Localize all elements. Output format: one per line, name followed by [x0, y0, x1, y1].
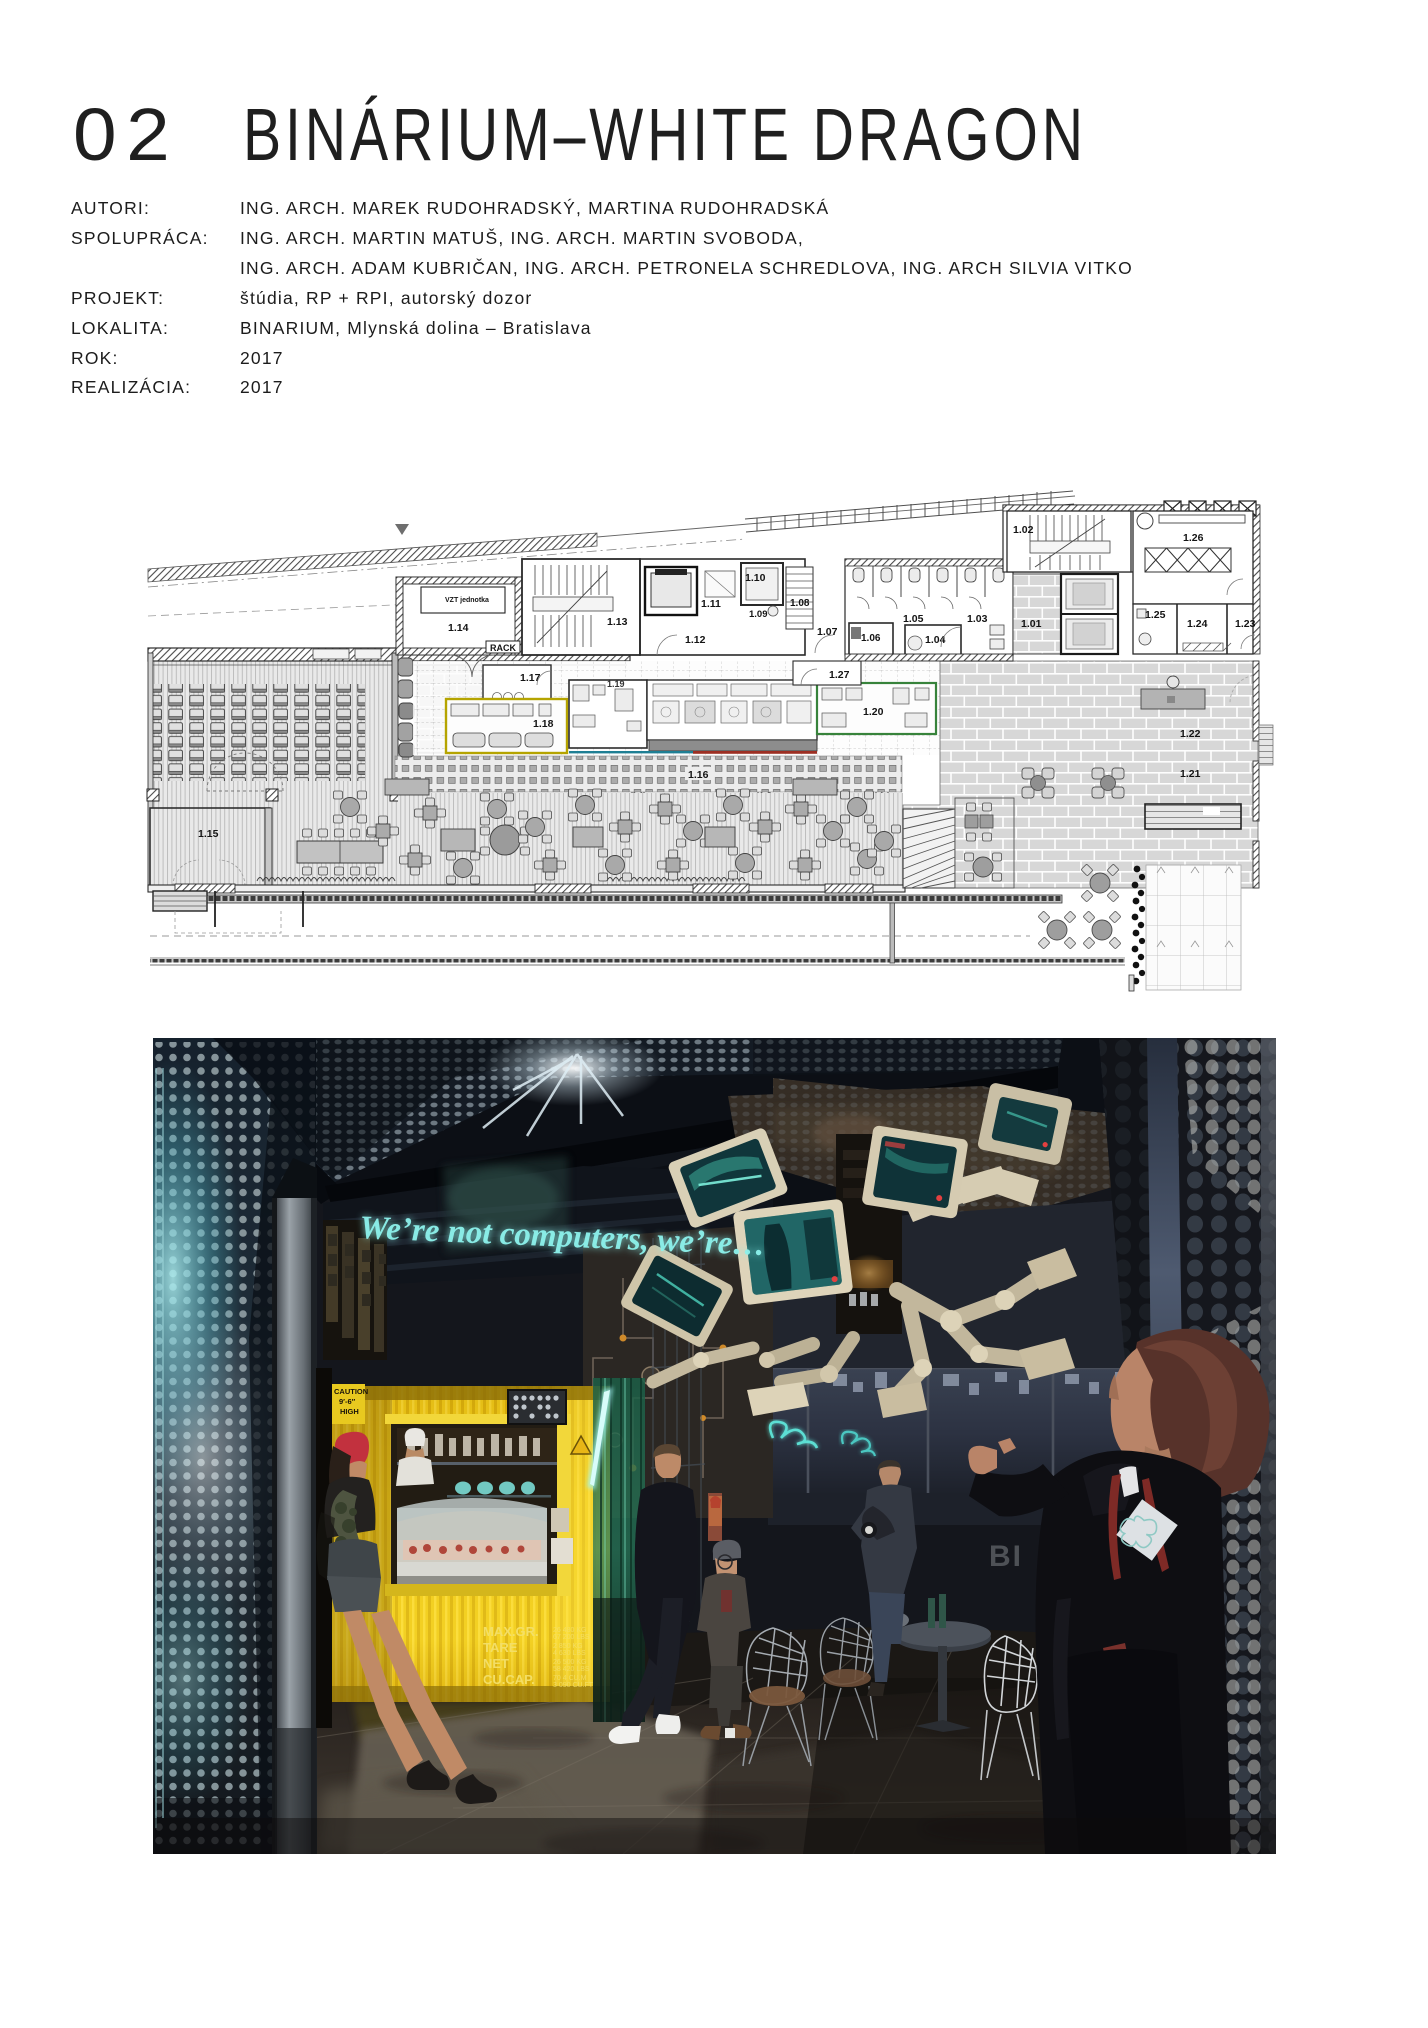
svg-text:9′-6″: 9′-6″ — [339, 1397, 356, 1406]
svg-text:1.12: 1.12 — [685, 634, 706, 646]
svg-text:1.16: 1.16 — [688, 769, 709, 781]
svg-text:26 480 KG: 26 480 KG — [553, 1627, 586, 1634]
svg-text:TARE: TARE — [483, 1640, 518, 1655]
svg-text:1.11: 1.11 — [701, 598, 721, 610]
svg-text:CU.CAP.: CU.CAP. — [483, 1672, 535, 1687]
svg-text:1.03: 1.03 — [967, 613, 988, 625]
svg-text:HIGH: HIGH — [340, 1407, 359, 1416]
svg-text:1.14: 1.14 — [448, 622, 469, 634]
svg-text:1.05: 1.05 — [903, 613, 924, 625]
svg-text:NET: NET — [483, 1656, 509, 1671]
svg-text:1.02: 1.02 — [1013, 524, 1034, 536]
svg-text:67 200 LBS: 67 200 LBS — [553, 1634, 590, 1641]
svg-text:1.20: 1.20 — [863, 706, 884, 718]
svg-text:1.10: 1.10 — [745, 572, 766, 584]
svg-text:26 500 KG: 26 500 KG — [553, 1659, 586, 1666]
svg-text:1.23: 1.23 — [1235, 618, 1256, 630]
svg-text:CAUTION: CAUTION — [334, 1387, 368, 1396]
svg-text:1.06: 1.06 — [861, 633, 881, 644]
svg-text:4 630 LBS: 4 630 LBS — [553, 1650, 586, 1657]
svg-text:MAX.GR.: MAX.GR. — [483, 1624, 539, 1639]
svg-text:BI: BI — [989, 1540, 1023, 1573]
svg-text:1.24: 1.24 — [1187, 618, 1208, 630]
svg-text:1.09: 1.09 — [749, 609, 768, 620]
svg-text:2 850 KG: 2 850 KG — [553, 1643, 583, 1650]
svg-text:1.08: 1.08 — [790, 598, 810, 609]
svg-text:1.01: 1.01 — [1021, 618, 1042, 630]
svg-text:3 090 CU.FT: 3 090 CU.FT — [553, 1682, 594, 1689]
svg-text:58 420 LBS: 58 420 LBS — [553, 1666, 590, 1673]
svg-text:1.18: 1.18 — [533, 718, 554, 730]
svg-text:1.13: 1.13 — [607, 616, 628, 628]
svg-text:1.25: 1.25 — [1145, 609, 1166, 621]
svg-text:RACK: RACK — [490, 643, 516, 653]
svg-text:70 4 CU.M: 70 4 CU.M — [553, 1675, 587, 1682]
svg-text:1.19: 1.19 — [607, 679, 625, 689]
svg-text:1.22: 1.22 — [1180, 728, 1201, 740]
svg-text:1.15: 1.15 — [198, 828, 219, 840]
svg-text:1.27: 1.27 — [829, 669, 850, 681]
svg-text:1.21: 1.21 — [1180, 768, 1201, 780]
svg-text:VZT jednotka: VZT jednotka — [445, 597, 489, 604]
svg-text:1.26: 1.26 — [1183, 532, 1204, 544]
